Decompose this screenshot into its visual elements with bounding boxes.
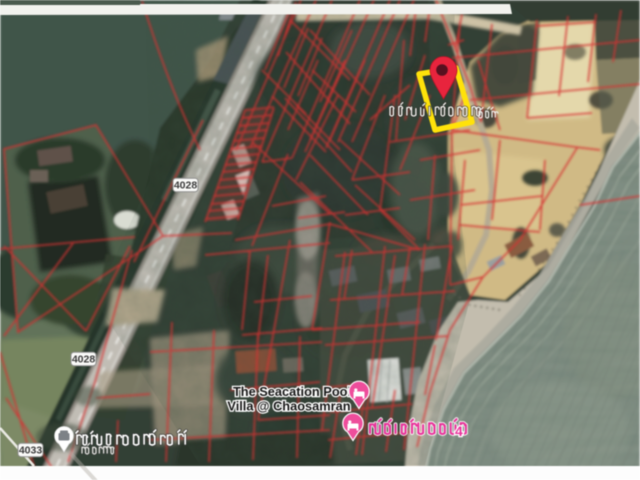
svg-text:4033: 4033 [19, 445, 43, 457]
svg-text:4028: 4028 [72, 354, 96, 366]
svg-text:The Seacation Pool: The Seacation Pool [233, 384, 351, 399]
svg-text:4: 4 [455, 423, 463, 439]
svg-text:Villa @ Chaosamran: Villa @ Chaosamran [227, 399, 350, 414]
svg-text:4028: 4028 [174, 180, 198, 192]
